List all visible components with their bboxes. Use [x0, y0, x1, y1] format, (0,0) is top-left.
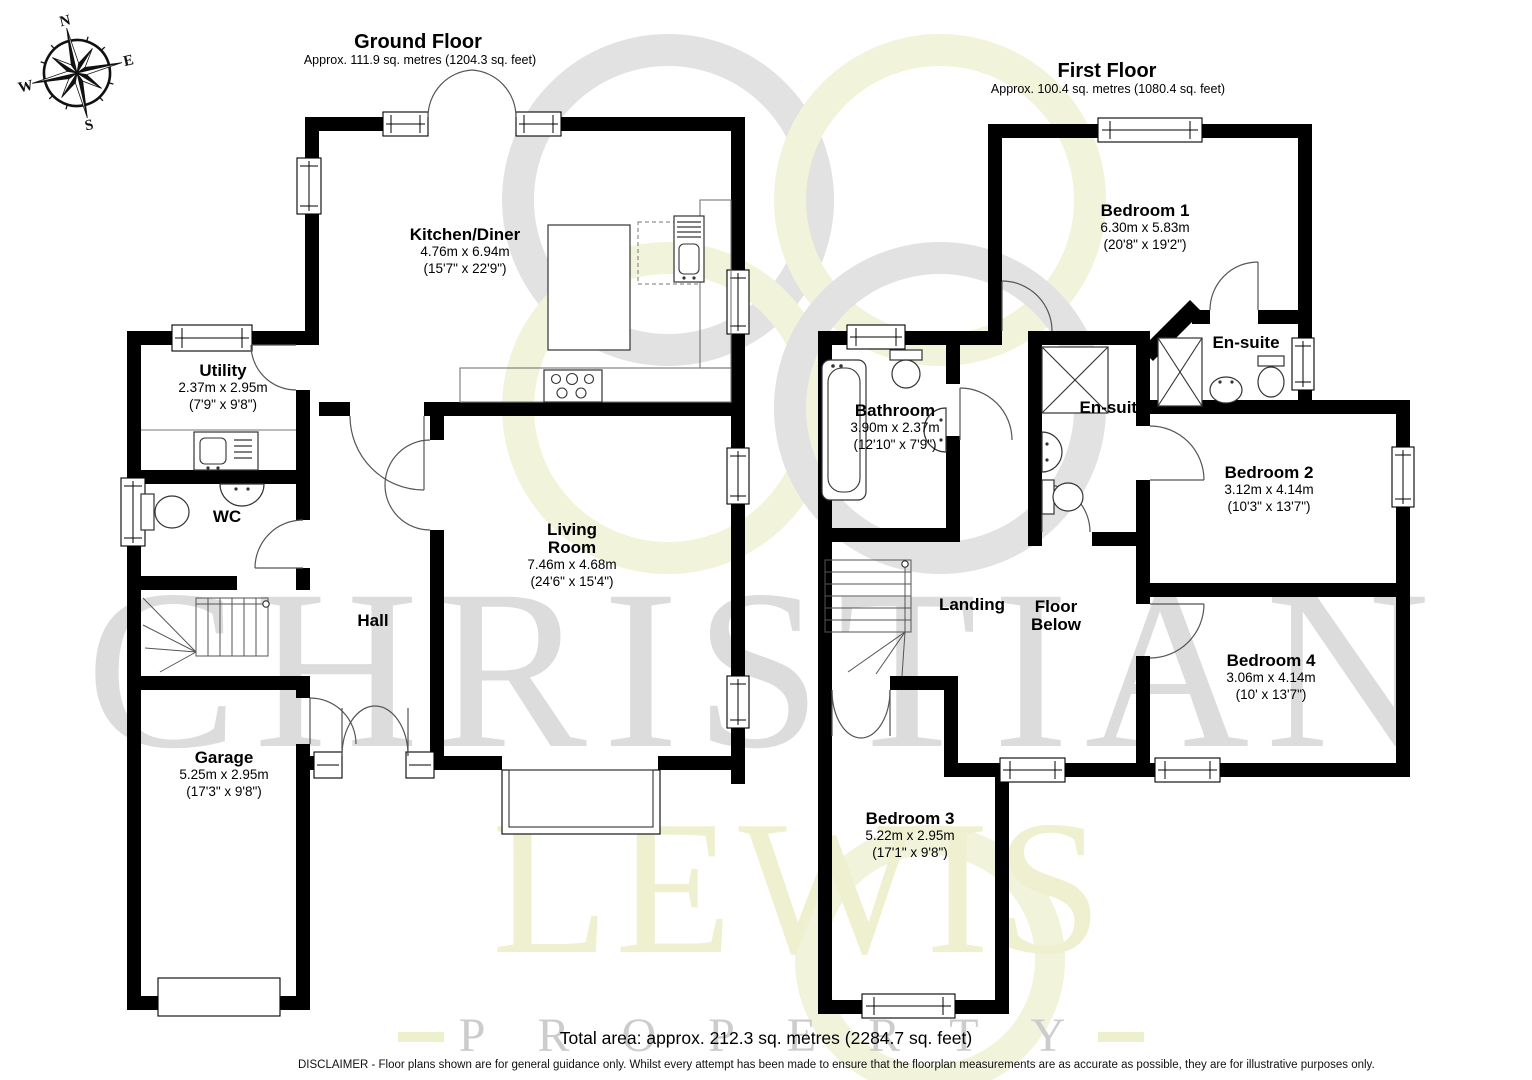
window-icon — [406, 752, 434, 778]
room-label-bathroom: Bathroom 3.90m x 2.37m (12'10" x 7'9") — [850, 402, 939, 453]
toilet-icon — [141, 494, 189, 530]
first-floor-walls — [818, 124, 1410, 1014]
window-icon — [314, 752, 342, 778]
room-label-living-room: Living Room 7.46m x 4.68m (24'6" x 15'4"… — [527, 521, 616, 590]
wc-fixtures — [141, 484, 264, 530]
compass-s-label: S — [83, 117, 95, 134]
kitchen-island — [548, 225, 630, 350]
garage-door — [158, 978, 280, 1016]
window-icon — [1155, 758, 1220, 782]
window-icon — [1392, 447, 1414, 507]
first-floor-title: First Floor — [1058, 60, 1157, 83]
utility-fixtures — [141, 430, 296, 470]
floorplan-drawing: N E S W — [0, 0, 1532, 1080]
room-label-floor-below: Floor Below — [1031, 598, 1081, 634]
staircase-ground — [143, 598, 269, 672]
window-icon — [172, 325, 252, 351]
toilet-icon — [890, 350, 922, 388]
window-icon — [1000, 758, 1065, 782]
room-label-bedroom-1: Bedroom 1 6.30m x 5.83m (20'8" x 19'2") — [1100, 202, 1189, 253]
compass-e-label: E — [122, 52, 135, 70]
basin-icon — [1042, 432, 1062, 472]
room-label-utility: Utility 2.37m x 2.95m (7'9" x 9'8") — [178, 362, 267, 413]
first-floor-plan — [818, 118, 1414, 1018]
window-icon — [1292, 338, 1314, 390]
window-icon — [1098, 118, 1202, 142]
room-label-ensuite-1: En-suite — [1212, 334, 1279, 352]
room-label-wc: WC — [213, 508, 241, 526]
disclaimer-text: DISCLAIMER - Floor plans shown are for g… — [298, 1059, 1530, 1071]
ground-floor-title: Ground Floor — [354, 31, 482, 54]
utility-sink-icon — [194, 432, 258, 470]
window-icon — [516, 112, 561, 136]
room-label-garage: Garage 5.25m x 2.95m (17'3" x 9'8") — [179, 749, 268, 800]
window-icon — [862, 994, 955, 1018]
compass-rose-icon: N E S W — [4, 1, 147, 148]
hob-icon — [544, 370, 602, 402]
total-area-text: Total area: approx. 212.3 sq. metres (22… — [0, 1028, 1532, 1049]
window-icon — [847, 325, 905, 349]
window-icon — [727, 448, 749, 504]
first-floor-area: Approx. 100.4 sq. metres (1080.4 sq. fee… — [991, 82, 1225, 96]
window-icon — [727, 270, 749, 334]
staircase-first — [825, 560, 911, 676]
room-label-hall: Hall — [357, 612, 388, 630]
room-label-kitchen-diner: Kitchen/Diner 4.76m x 6.94m (15'7" x 22'… — [410, 226, 521, 277]
room-label-bedroom-2: Bedroom 2 3.12m x 4.14m (10'3" x 13'7") — [1224, 464, 1313, 515]
room-label-bedroom-4: Bedroom 4 3.06m x 4.14m (10' x 13'7") — [1226, 652, 1315, 703]
ensuite2-fixtures — [1042, 347, 1108, 514]
room-label-bedroom-3: Bedroom 3 5.22m x 2.95m (17'1" x 9'8") — [865, 810, 954, 861]
compass-n-label: N — [58, 12, 72, 30]
bay-window — [502, 770, 660, 834]
window-icon — [297, 158, 321, 214]
window-icon — [727, 676, 749, 728]
first-floor-windows — [847, 118, 1414, 1018]
toilet-icon — [1042, 480, 1083, 514]
toilet-icon — [1258, 356, 1284, 397]
compass-w-label: W — [17, 77, 35, 96]
basin-icon — [220, 484, 264, 506]
room-label-landing: Landing — [939, 596, 1005, 614]
shower-icon — [1158, 338, 1202, 406]
room-label-ensuite-2: En-suite — [1079, 399, 1146, 417]
ground-floor-area: Approx. 111.9 sq. metres (1204.3 sq. fee… — [304, 53, 536, 67]
window-icon — [383, 112, 428, 136]
ground-floor-plan — [121, 70, 749, 1016]
basin-icon — [1210, 377, 1242, 403]
kitchen-sink-icon — [674, 216, 704, 282]
